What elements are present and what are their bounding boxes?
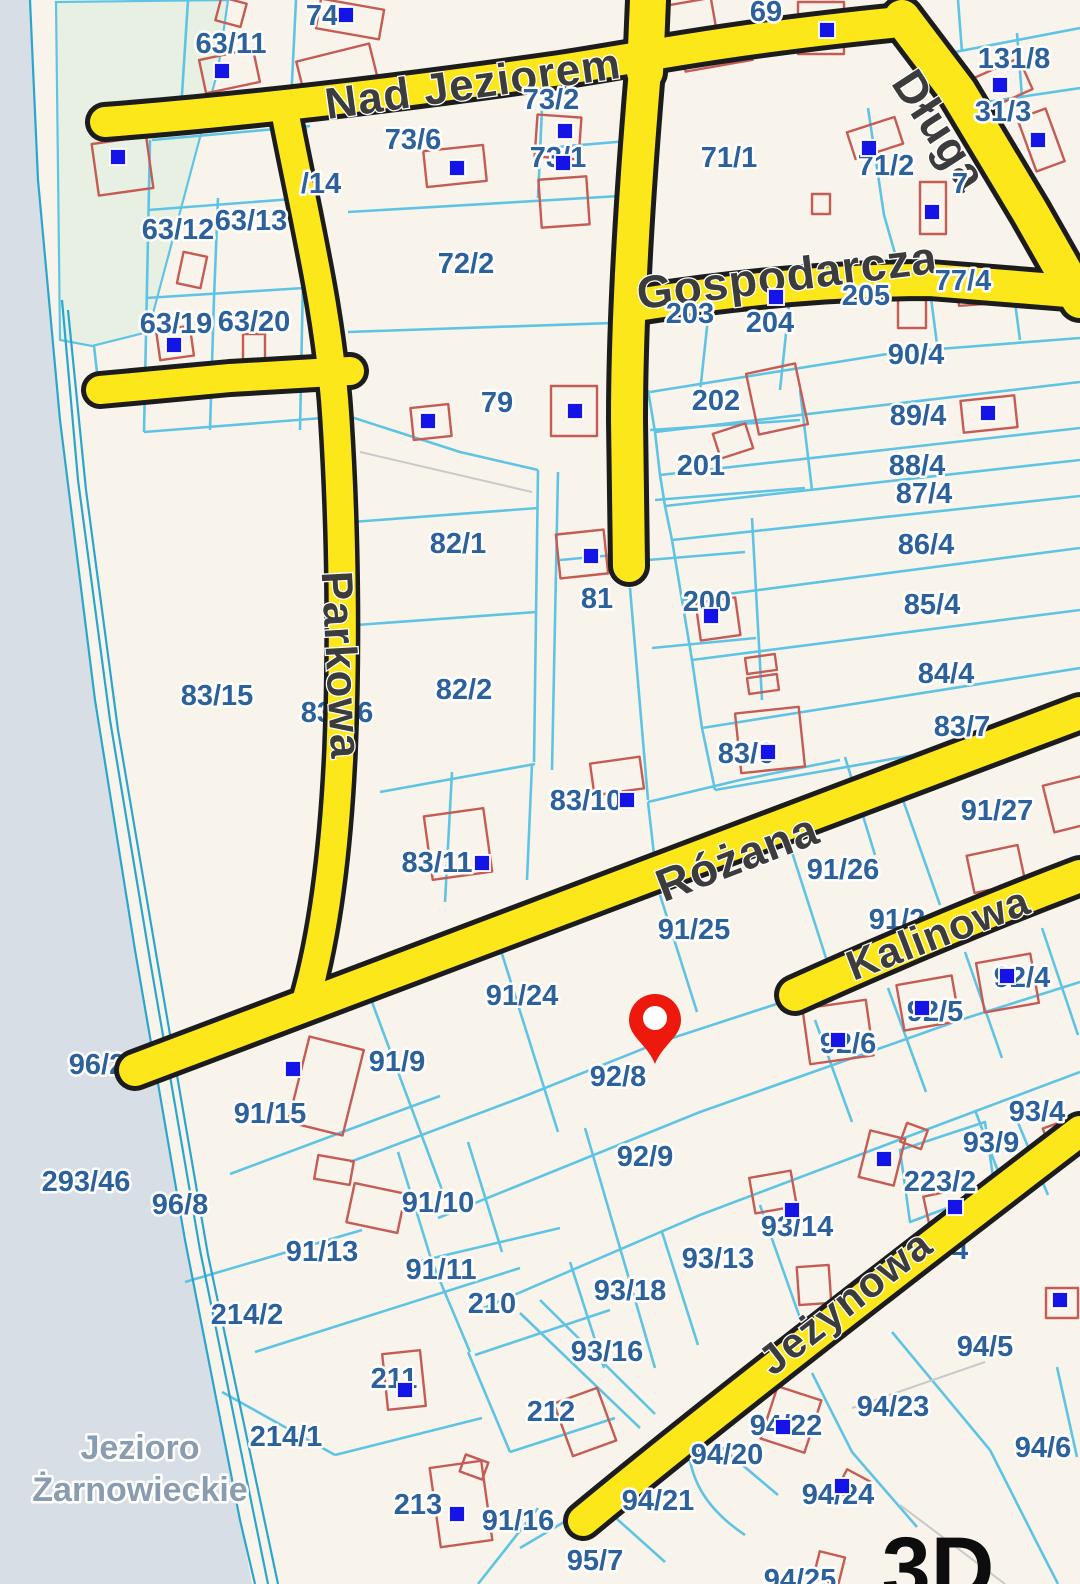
parcel-label: 210: [468, 1288, 516, 1320]
parcel-label: 93/4: [1009, 1096, 1065, 1128]
parcel-label: 94/25: [764, 1564, 837, 1584]
parcel-label: 73/6: [385, 124, 441, 156]
building-point-marker[interactable]: [166, 337, 182, 353]
building-point-marker[interactable]: [992, 77, 1008, 93]
water-label-line1: Jezioro: [80, 1429, 199, 1467]
parcel-label: 73/2: [523, 84, 579, 116]
parcel-label: 94/23: [857, 1391, 930, 1423]
parcel-label: 89/4: [890, 400, 946, 432]
parcel-label: 204: [746, 307, 794, 339]
parcel-label: 91/10: [402, 1187, 475, 1219]
parcel-label: 91/24: [486, 980, 559, 1012]
parcel-label: 92/6: [820, 1028, 876, 1060]
parcel-label: 83/10: [550, 785, 623, 817]
parcel-label: 77/4: [935, 265, 991, 297]
parcel-label: 91/16: [482, 1505, 555, 1537]
building-point-marker[interactable]: [1052, 1292, 1068, 1308]
building-point-marker[interactable]: [338, 7, 354, 23]
building-point-marker[interactable]: [557, 123, 573, 139]
parcel-label: 91/25: [658, 914, 731, 946]
building-point-marker[interactable]: [947, 1199, 963, 1215]
parcel-label: 293/46: [42, 1166, 131, 1198]
building-point-marker[interactable]: [999, 968, 1015, 984]
water-label-line2: Żarnowieckie: [32, 1471, 247, 1509]
building-point-marker[interactable]: [834, 1478, 850, 1494]
parcel-label: 74: [306, 0, 338, 32]
building-point-marker[interactable]: [449, 160, 465, 176]
building-point-marker[interactable]: [397, 1382, 413, 1398]
building-point-marker[interactable]: [110, 149, 126, 165]
parcel-label: 214/1: [250, 1421, 323, 1453]
parcel-label: 84/4: [918, 658, 974, 690]
parcel-label: 82/1: [430, 528, 486, 560]
building-point-marker[interactable]: [555, 155, 571, 171]
parcel-label: 95/7: [567, 1545, 623, 1577]
parcel-label: 93/16: [571, 1336, 644, 1368]
parcel-label: 214/2: [211, 1299, 284, 1331]
parcel-label: /14: [301, 168, 341, 200]
parcel-label: 83/7: [934, 711, 990, 743]
parcel-label: 69: [750, 0, 782, 28]
parcel-label: 72/2: [438, 248, 494, 280]
building-point-marker[interactable]: [583, 548, 599, 564]
parcel-label: 83/11: [402, 847, 473, 879]
parcel-label: 92/8: [590, 1061, 646, 1093]
building-point-marker[interactable]: [703, 608, 719, 624]
building-point-marker[interactable]: [819, 22, 835, 38]
map-viewport[interactable]: 183/1691/296/29491/16 Na: [0, 0, 1080, 1584]
building-point-marker[interactable]: [980, 405, 996, 421]
building-point-marker[interactable]: [420, 413, 436, 429]
parcel-label: 94/20: [691, 1439, 764, 1471]
parcel-label: 92/9: [617, 1141, 673, 1173]
parcel-label: 93/18: [594, 1275, 667, 1307]
parcel-label: 91/26: [807, 854, 880, 886]
building-point-marker[interactable]: [449, 1506, 465, 1522]
parcel-label: 91/9: [369, 1046, 425, 1078]
parcel-label: 94/21: [622, 1485, 695, 1517]
parcel-label: 82/2: [436, 674, 492, 706]
parcel-label: 81: [581, 583, 613, 615]
street-name-label: Parkowa: [312, 570, 371, 760]
parcel-label: 212: [527, 1396, 575, 1428]
parcel-label: 63/11: [196, 28, 267, 60]
pin-hole: [643, 1006, 667, 1030]
parcel-label: 202: [692, 385, 740, 417]
parcel-label: 83/15: [181, 680, 254, 712]
parcel-label: 31/3: [975, 96, 1031, 128]
parcel-label: 63/19: [140, 308, 213, 340]
building-point-marker[interactable]: [285, 1061, 301, 1077]
parcel-label: 94/6: [1015, 1432, 1071, 1464]
parcel-label: 93/9: [963, 1127, 1019, 1159]
building-point-marker[interactable]: [876, 1151, 892, 1167]
parcel-label: 79: [481, 387, 513, 419]
parcel-label: 94/5: [957, 1331, 1013, 1363]
building-point-marker[interactable]: [474, 855, 490, 871]
parcel-label: 91/13: [286, 1236, 359, 1268]
building-point-marker[interactable]: [924, 204, 940, 220]
parcel-label: 205: [842, 280, 890, 312]
parcel-label: 63/13: [215, 205, 288, 237]
parcel-label: 86/4: [898, 529, 954, 561]
building-point-marker[interactable]: [861, 140, 877, 156]
parcel-label: 7: [952, 168, 968, 200]
parcel-label: 90/4: [888, 339, 944, 371]
parcel-label: 201: [677, 450, 725, 482]
parcel-label: 203: [666, 298, 714, 330]
parcel-label: 63/20: [218, 306, 291, 338]
parcel-label: 131/8: [978, 43, 1051, 75]
parcel-label: 87/4: [896, 478, 952, 510]
building-point-marker[interactable]: [1030, 132, 1046, 148]
parcel-label: 91/15: [234, 1098, 307, 1130]
parcel-label: 93/13: [682, 1243, 755, 1275]
parcel-label: 85/4: [904, 589, 960, 621]
building-point-marker[interactable]: [760, 744, 776, 760]
view-3d-button[interactable]: 3D: [882, 1519, 995, 1584]
parcel-label: 71/1: [701, 142, 757, 174]
building-point-marker[interactable]: [214, 63, 230, 79]
building-point-marker[interactable]: [775, 1419, 791, 1435]
parcel-label: 96/8: [152, 1189, 208, 1221]
building-point-marker[interactable]: [830, 1032, 846, 1048]
parcel-label: 223/2: [904, 1166, 977, 1198]
parcel-label: 63/12: [142, 214, 215, 246]
map-canvas[interactable]: 183/1691/296/29491/16 Na: [0, 0, 1080, 1584]
building-point-marker[interactable]: [768, 289, 784, 305]
parcel-label: 213: [394, 1489, 442, 1521]
building-point-marker[interactable]: [619, 792, 635, 808]
parcel-label: 91/27: [961, 795, 1034, 827]
parcel-label: 91/11: [406, 1254, 477, 1286]
building-point-marker[interactable]: [784, 1202, 800, 1218]
building-point-marker[interactable]: [914, 1000, 930, 1016]
building-point-marker[interactable]: [567, 403, 583, 419]
